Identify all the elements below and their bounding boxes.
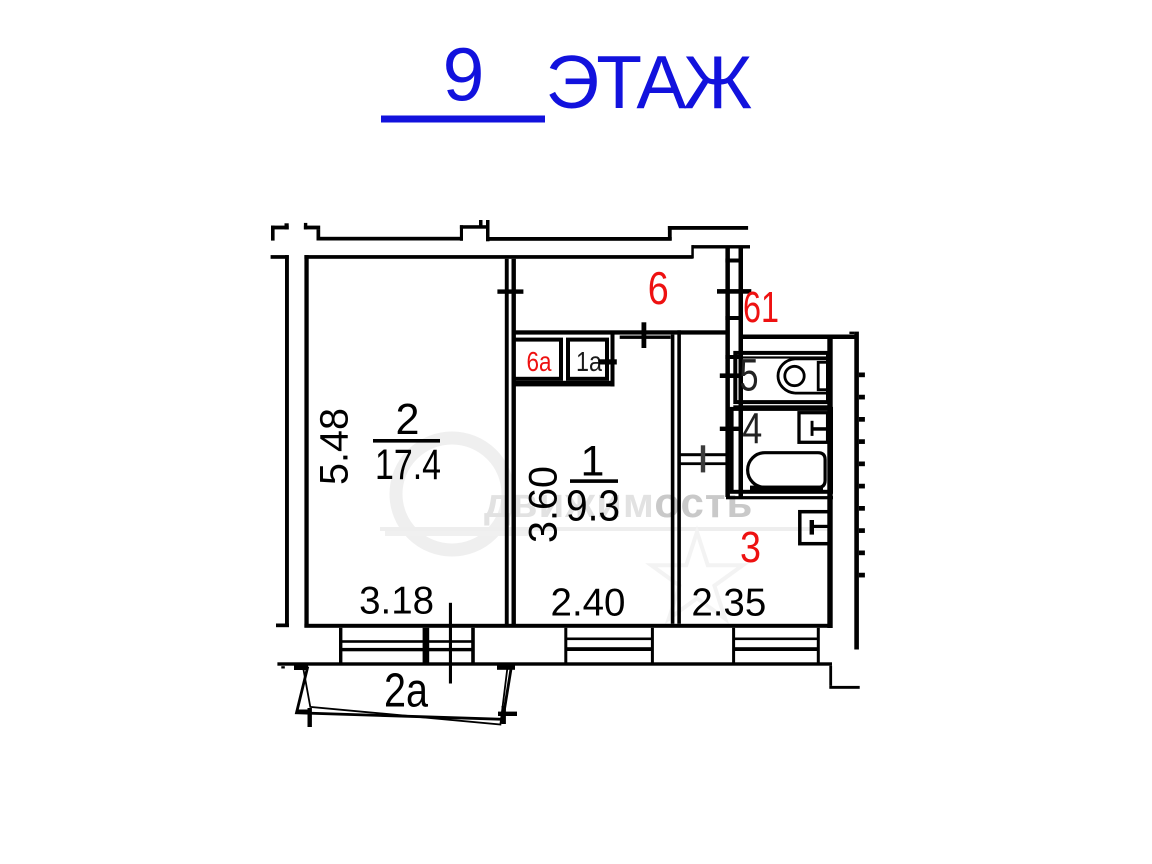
svg-text:2a: 2a (384, 665, 428, 718)
svg-text:5: 5 (740, 350, 759, 401)
svg-text:6: 6 (648, 262, 669, 314)
svg-text:ЭТАЖ: ЭТАЖ (546, 40, 753, 124)
svg-text:3: 3 (740, 523, 761, 572)
svg-text:9.3: 9.3 (566, 482, 620, 531)
svg-text:6а: 6а (527, 346, 552, 377)
svg-text:9: 9 (443, 33, 485, 117)
svg-text:4: 4 (742, 405, 762, 454)
svg-text:2.35: 2.35 (691, 581, 766, 624)
svg-text:1: 1 (581, 438, 605, 486)
svg-text:1а: 1а (576, 346, 602, 377)
svg-text:3.18: 3.18 (359, 580, 434, 623)
svg-text:5.48: 5.48 (313, 408, 357, 485)
svg-text:2: 2 (396, 395, 420, 444)
svg-text:61: 61 (743, 283, 779, 332)
svg-text:2.40: 2.40 (551, 581, 626, 624)
svg-text:3.60: 3.60 (522, 466, 566, 543)
svg-text:17.4: 17.4 (375, 441, 441, 489)
